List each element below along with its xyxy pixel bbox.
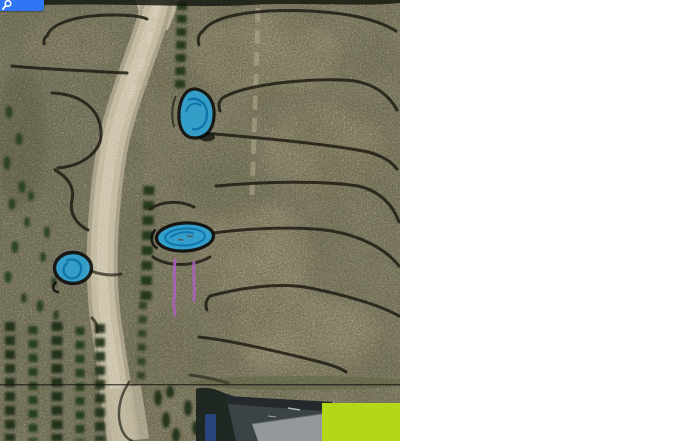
annotation-highlight-rect	[322, 403, 400, 441]
map-canvas[interactable]	[0, 0, 400, 441]
aerial-imagery	[0, 0, 400, 441]
search-button[interactable]	[0, 0, 44, 11]
left-marker-line	[174, 260, 175, 315]
blue-object	[205, 414, 216, 441]
dirt-road	[0, 0, 400, 441]
app-window	[0, 0, 700, 441]
search-icon	[1, 0, 15, 11]
right-marker-line	[194, 262, 195, 300]
empty-canvas-area	[400, 0, 700, 441]
